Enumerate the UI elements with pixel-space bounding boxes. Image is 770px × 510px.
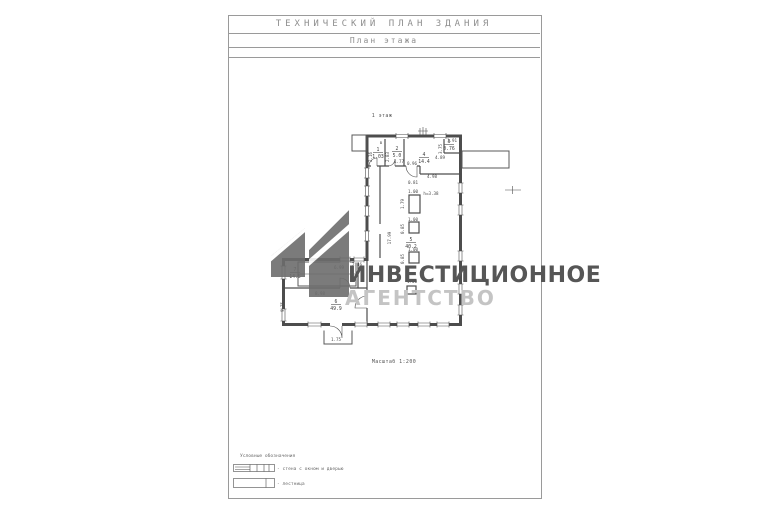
- logo-sail-right: [304, 210, 353, 297]
- document-page: ТЕХНИЧЕСКИЙ ПЛАН ЗДАНИЯ План этажа: [0, 0, 770, 510]
- watermark-logo: [0, 0, 770, 510]
- watermark-text-line1: ИНВЕСТИЦИОННОЕ: [348, 263, 601, 288]
- watermark-text-line2: АГЕНТСТВО: [345, 286, 496, 310]
- logo-sail-left: [266, 226, 309, 277]
